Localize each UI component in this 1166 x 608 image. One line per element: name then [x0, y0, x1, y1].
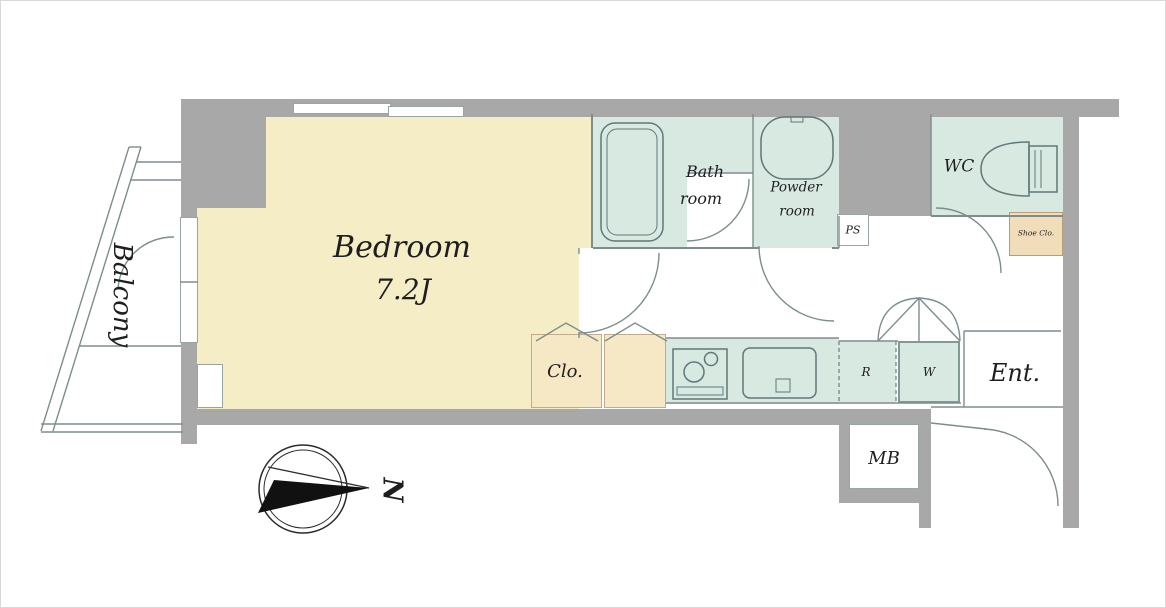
pipe-space-label: PS: [846, 225, 861, 236]
wall-mb-right: [919, 409, 931, 528]
compass-needle: [258, 480, 369, 513]
powder-room-door-arc: [759, 246, 834, 321]
entrance-label: Ent.: [990, 361, 1040, 385]
plan-linework: [1, 1, 1165, 607]
north-label: N: [379, 478, 406, 503]
wall-mb-bottom: [839, 489, 931, 503]
wc-label: WC: [944, 159, 974, 176]
closet-area-2: [604, 334, 666, 408]
entry-door-arc: [984, 429, 1058, 506]
compass-icon: [258, 445, 369, 533]
bedroom-door-arc: [579, 253, 659, 333]
wall-bottom: [181, 409, 931, 425]
powder-room-label-line1: Powder: [770, 181, 821, 195]
washer-space-label: W: [923, 366, 935, 378]
bathroom-label-line2: room: [680, 191, 722, 207]
balcony-window: [180, 217, 198, 343]
bedroom-pillar: [197, 364, 223, 408]
meter-box-label: MB: [868, 450, 900, 468]
balcony-label: Balcony: [109, 243, 135, 348]
bedroom-size-label: 7.2J: [375, 276, 431, 304]
floor-plan: Bedroom 7.2J Balcony Bath room Powder ro…: [0, 0, 1166, 608]
refrigerator-space-label: R: [861, 366, 870, 378]
wall-top-left-block: [181, 99, 266, 208]
bedroom-top-window-2: [388, 106, 464, 117]
powder-room-label-line2: room: [779, 205, 815, 219]
shoe-closet-label: Shoe Clo.: [1018, 229, 1054, 237]
wc-door-arc: [936, 208, 1001, 273]
wall-mid-block: [839, 114, 931, 216]
bathroom-entry-floor: [687, 173, 753, 248]
bathroom-label-line1: Bath: [686, 164, 724, 180]
kitchen-area: [666, 338, 839, 404]
bedroom-label: Bedroom: [333, 233, 471, 263]
closet-label: Clo.: [547, 363, 583, 381]
bedroom-top-window: [293, 103, 391, 114]
washer-bifold-icon: [878, 298, 960, 341]
wall-right: [1063, 99, 1079, 528]
